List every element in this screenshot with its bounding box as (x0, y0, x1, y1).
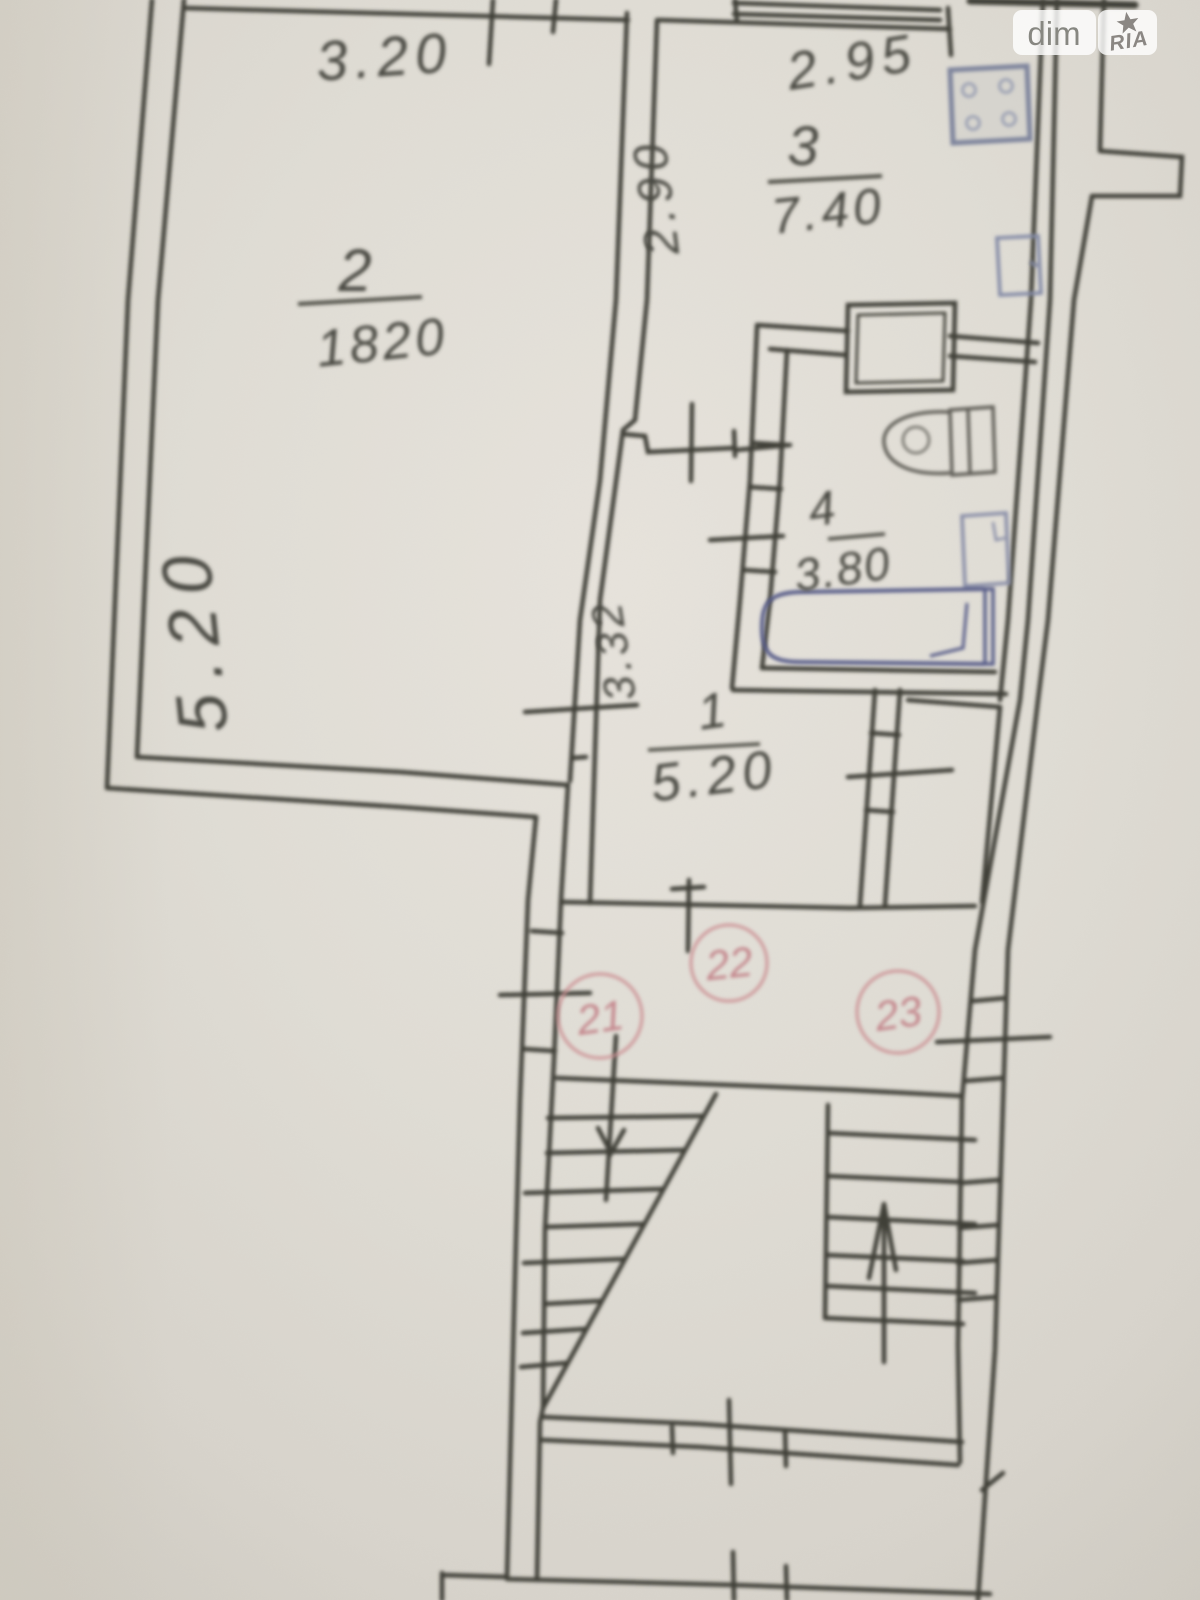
svg-text:2: 2 (337, 237, 371, 304)
svg-text:23: 23 (871, 987, 925, 1040)
svg-text:21: 21 (573, 991, 627, 1044)
svg-text:dim: dim (1027, 15, 1080, 52)
svg-text:3.20: 3.20 (314, 20, 455, 92)
svg-text:3: 3 (787, 114, 818, 177)
svg-text:7.40: 7.40 (769, 177, 888, 245)
svg-text:22: 22 (702, 938, 754, 990)
